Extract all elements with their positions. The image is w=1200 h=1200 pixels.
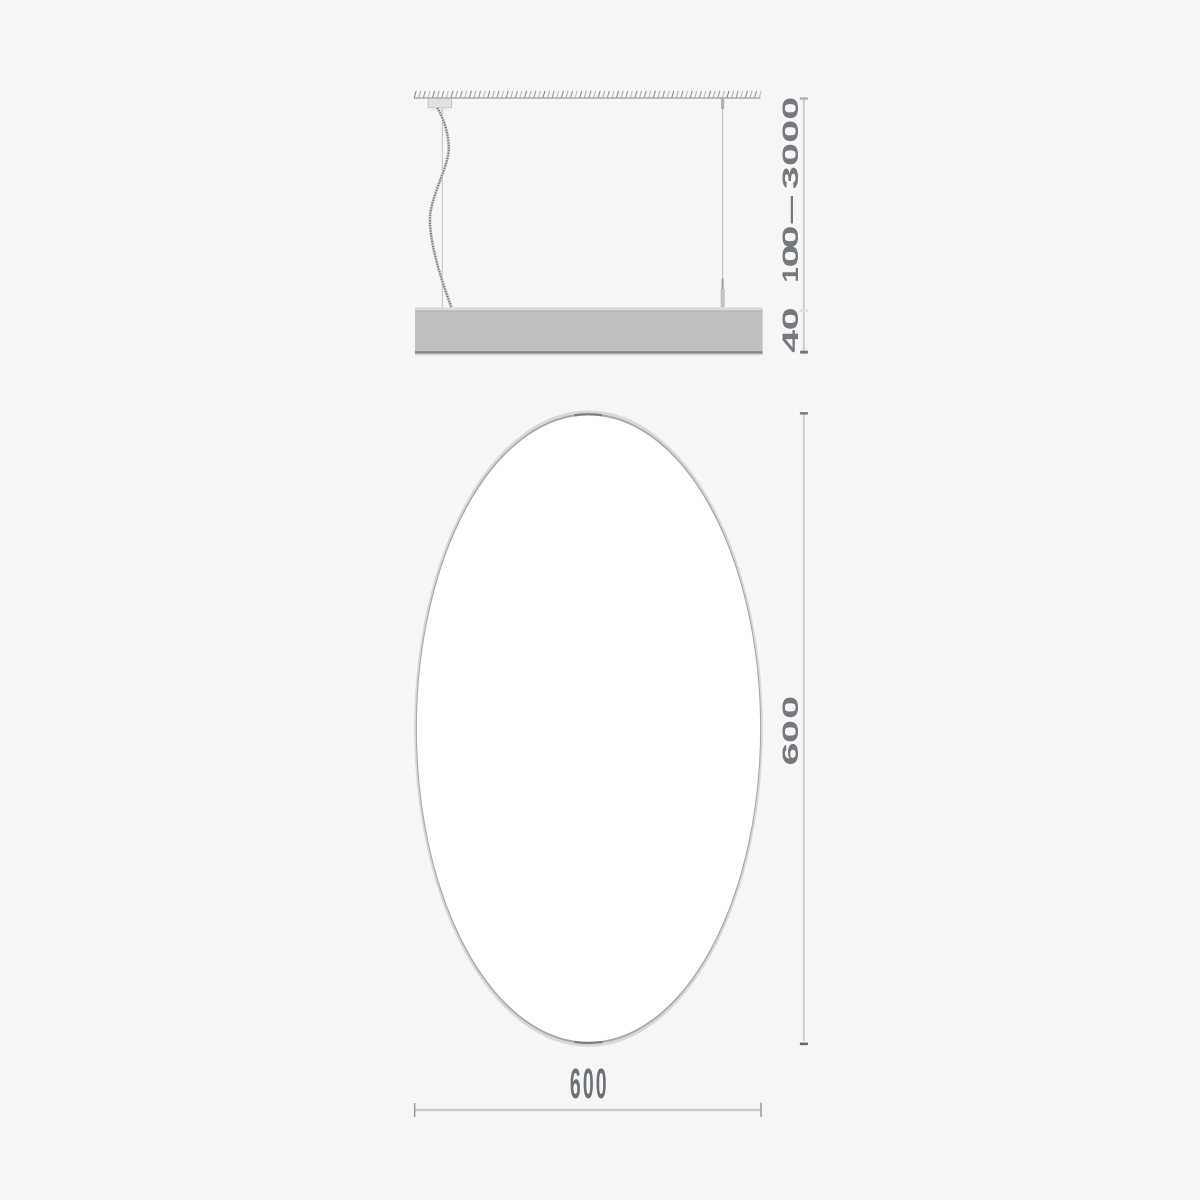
svg-text:0: 0 (779, 720, 804, 743)
svg-text:0: 0 (779, 696, 804, 719)
svg-text:3: 3 (779, 166, 804, 189)
svg-text:600: 600 (570, 1059, 609, 1107)
svg-text:—: — (779, 196, 804, 224)
svg-text:0: 0 (779, 225, 804, 248)
svg-text:6: 6 (779, 742, 804, 765)
svg-text:0: 0 (779, 143, 804, 166)
svg-text:1: 1 (779, 267, 804, 282)
svg-text:0: 0 (779, 97, 804, 120)
svg-text:4: 4 (779, 329, 804, 353)
svg-text:0: 0 (779, 307, 804, 330)
svg-text:0: 0 (779, 120, 804, 143)
